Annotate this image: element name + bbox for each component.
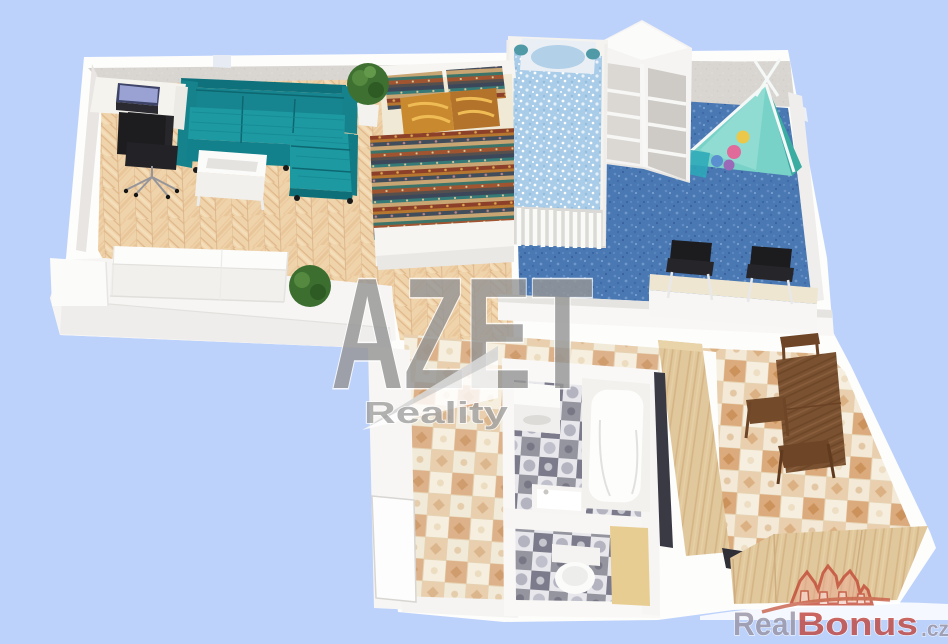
- svg-text:.cz: .cz: [921, 618, 948, 641]
- svg-text:Reality: Reality: [364, 395, 509, 430]
- svg-text:Bonus: Bonus: [797, 606, 918, 642]
- svg-text:Real: Real: [733, 606, 797, 642]
